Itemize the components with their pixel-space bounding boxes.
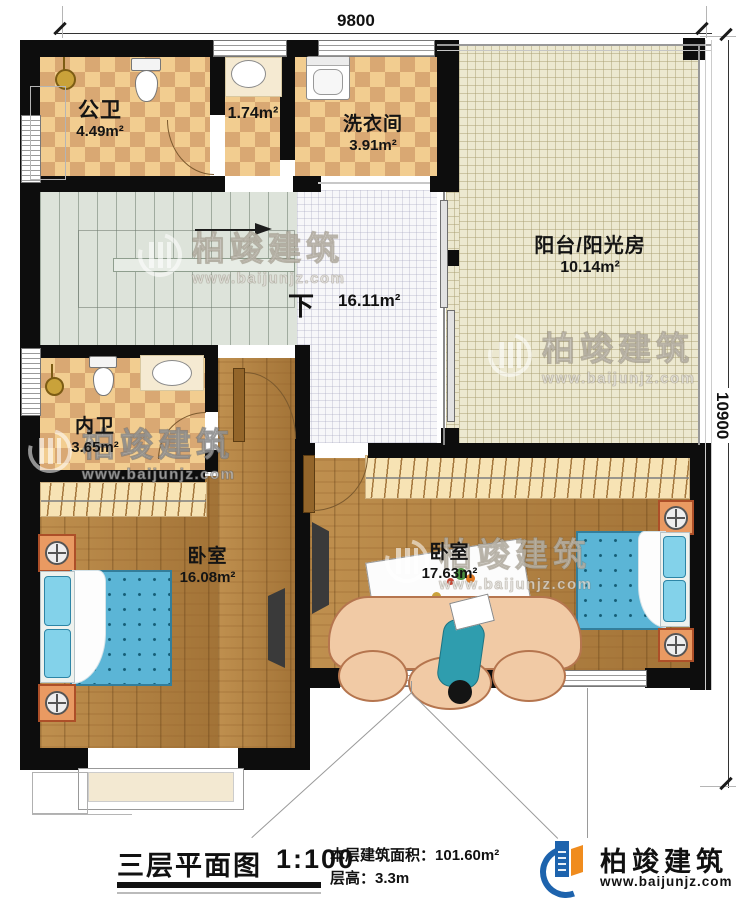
plan-stats: 本层建筑面积：101.60m² 层高：3.3m <box>330 844 499 891</box>
dimension-tick <box>719 777 732 790</box>
wall <box>205 450 218 472</box>
logo-building-orange <box>571 845 583 876</box>
sofa-cushion <box>492 650 566 702</box>
pillow <box>663 536 686 578</box>
room-area: 3.65m² <box>55 439 135 457</box>
room-name: 公卫 <box>55 98 145 123</box>
washer-panel <box>307 57 349 66</box>
stair-direction-line <box>195 229 257 231</box>
floor-plan: 9800 10900 柏竣建筑 www.baijunjz.com 柏竣建筑 ww… <box>0 0 750 902</box>
area-value: 101.60m² <box>435 847 499 864</box>
brand-site: www.baijunjz.com <box>600 874 733 889</box>
balcony-glass-line <box>437 44 712 46</box>
window <box>318 40 435 57</box>
wall <box>20 470 205 482</box>
washing-machine-icon <box>306 56 350 100</box>
wall <box>368 443 712 458</box>
room-name: 阳台/阳光房 <box>515 234 665 258</box>
floor-height-value: 3.3m <box>375 870 409 887</box>
room-label-neiwei: 内卫 3.65m² <box>55 416 135 457</box>
shower-head-icon <box>45 377 64 396</box>
nightstand <box>658 628 694 662</box>
wall <box>20 748 88 770</box>
shower-hose <box>51 364 53 378</box>
brand-logo-icon <box>540 838 592 892</box>
room-area: 10.14m² <box>515 258 665 277</box>
tv-icon <box>312 522 329 614</box>
wall-column <box>683 38 705 60</box>
person-head <box>448 680 472 704</box>
dimension-extension <box>700 786 736 787</box>
dimension-tick <box>719 28 732 41</box>
room-label-hall-area: 16.11m² <box>338 291 400 311</box>
balcony-glass-line <box>698 45 700 445</box>
wall <box>293 176 321 192</box>
roof-line <box>411 693 558 839</box>
pillow <box>44 629 71 678</box>
room-label-bedroom-left: 卧室 16.08m² <box>160 546 255 587</box>
room-name: 洗衣间 <box>328 114 418 137</box>
room-area: 3.91m² <box>328 137 418 155</box>
wall <box>205 345 218 412</box>
hallway-floor <box>297 190 437 443</box>
dimension-top-value: 9800 <box>333 11 379 31</box>
wall <box>437 40 459 192</box>
room-area: 17.63m² <box>402 565 497 583</box>
lamp-icon <box>664 633 688 657</box>
wall <box>238 748 310 770</box>
roof-line <box>587 688 588 838</box>
door-leaf <box>233 368 245 442</box>
room-label-gongwei: 公卫 4.49m² <box>55 98 145 141</box>
sink-icon <box>231 60 266 88</box>
balcony-frame-line <box>711 40 712 690</box>
dimension-extension <box>700 36 736 37</box>
title-underline-light <box>117 892 321 894</box>
logo-building-blue <box>555 841 569 877</box>
dimension-right-value: 10900 <box>712 388 732 443</box>
tv-icon <box>268 588 285 668</box>
floor-height-label: 层高： <box>330 870 375 887</box>
lamp-icon <box>45 691 69 715</box>
title-underline <box>117 882 321 888</box>
sliding-door-panel <box>440 200 448 308</box>
shower-hose <box>63 57 65 70</box>
window <box>213 40 287 57</box>
room-label-laundry: 洗衣间 3.91m² <box>328 114 418 155</box>
nightstand <box>38 684 76 722</box>
pillow <box>44 576 71 626</box>
plan-title-text: 三层平面图 <box>117 844 262 883</box>
laundry-threshold <box>318 182 430 184</box>
balcony-glass-line <box>437 50 712 51</box>
room-area: 4.49m² <box>55 123 145 141</box>
wall <box>295 668 340 688</box>
neighbor-outline <box>32 772 88 814</box>
pillow <box>663 580 686 622</box>
roof-line <box>411 681 412 693</box>
room-label-balcony: 阳台/阳光房 10.14m² <box>515 234 665 277</box>
window-louver <box>21 348 41 416</box>
sink-icon <box>152 360 192 386</box>
wall <box>430 176 459 192</box>
lamp-icon <box>45 541 69 565</box>
dimension-line-top <box>57 33 712 34</box>
stair-direction-arrow-icon <box>255 223 272 235</box>
stair-handrail <box>113 258 295 272</box>
sliding-door-panel <box>447 310 455 422</box>
wardrobe <box>365 455 690 499</box>
nightstand <box>38 534 76 572</box>
neighbor-outline <box>32 814 132 815</box>
bay-window-sill <box>88 772 234 802</box>
room-area: 16.08m² <box>160 569 255 587</box>
washer-drum <box>313 69 343 95</box>
nightstand <box>658 500 694 535</box>
room-label-bedroom-right: 卧室 17.63m² <box>402 542 497 583</box>
plan-title: 三层平面图 1:100 <box>117 844 355 883</box>
sofa-cushion <box>338 650 408 702</box>
room-name: 卧室 <box>402 542 497 565</box>
balcony-frame-line <box>705 40 706 690</box>
lamp-icon <box>664 506 688 530</box>
area-label: 本层建筑面积： <box>330 847 435 864</box>
room-area: 1.74m² <box>213 104 293 123</box>
title-block: 三层平面图 1:100 本层建筑面积：101.60m² 层高：3.3m 柏竣建筑… <box>0 836 750 902</box>
room-name: 卧室 <box>160 546 255 569</box>
stairs-down-label: 下 <box>288 286 314 323</box>
room-label-small-bath: 1.74m² <box>213 104 293 123</box>
wall <box>645 668 712 688</box>
wall <box>295 345 310 770</box>
wardrobe <box>40 482 207 517</box>
room-name: 内卫 <box>55 416 135 439</box>
